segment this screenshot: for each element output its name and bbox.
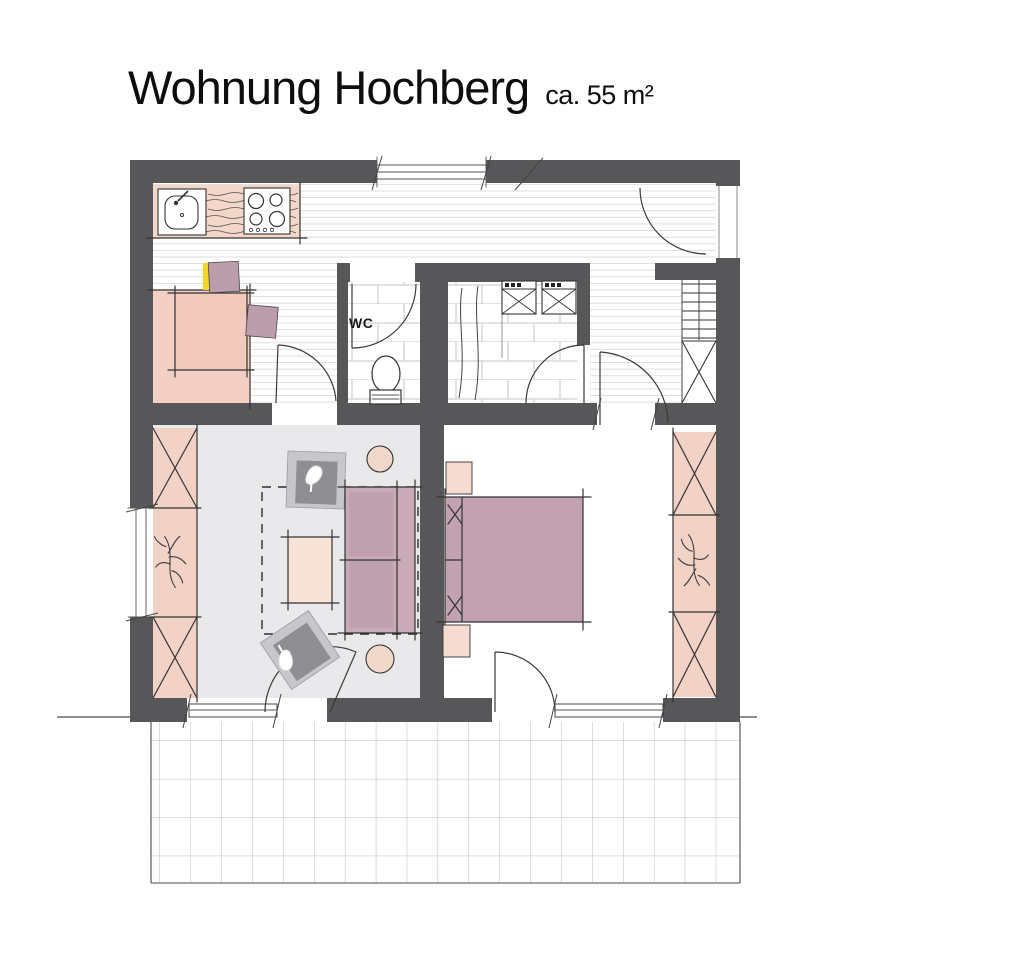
floorplan-page: Wohnung Hochbergca. 55 m²	[0, 0, 1024, 955]
stairs-icon	[682, 280, 716, 403]
wall-mid-vertical	[420, 403, 444, 722]
wall-top-left	[130, 160, 377, 183]
door-swing-icon-terrace-bedroom	[495, 652, 555, 712]
wall-mid-horizontal-1	[153, 403, 272, 425]
wardrobe-icon-living	[149, 424, 201, 702]
armchair-icon-1	[286, 451, 346, 509]
sofa-icon	[338, 480, 422, 640]
coffee-table-icon	[281, 530, 339, 610]
window-icon-top	[377, 157, 486, 187]
terrace-grid-icon	[151, 722, 740, 883]
wall-block-top-a	[337, 263, 350, 282]
chair-icon-1	[208, 261, 240, 293]
stove-icon	[244, 188, 290, 234]
wall-wc-bath	[420, 263, 448, 403]
wall-bottom-1	[130, 698, 187, 722]
washer-icon-1	[502, 281, 536, 314]
window-icon-terrace-bedroom	[555, 704, 663, 717]
wall-bottom-3	[663, 698, 740, 722]
chair-icon-2	[246, 305, 279, 338]
wall-right-main	[716, 258, 740, 722]
entrance-frame	[719, 186, 737, 258]
wall-wc-left	[337, 263, 348, 403]
pouf-icon-1	[367, 446, 393, 472]
nightstand-icon-1	[446, 462, 472, 494]
hall-lower-floor	[590, 263, 682, 403]
wall-right-top	[716, 160, 740, 186]
floorplan-drawing: WC	[0, 0, 1024, 955]
wall-mid-horizontal-2	[337, 403, 597, 425]
wardrobe-icon-bedroom	[669, 428, 720, 702]
terrace	[57, 717, 757, 883]
sink-icon	[158, 189, 206, 235]
bedroom	[437, 428, 720, 702]
wc-label: WC	[349, 315, 373, 331]
washer-icon-2	[542, 281, 576, 314]
nightstand-icon-2	[443, 625, 470, 657]
bed-icon	[437, 489, 591, 630]
wall-block-top-b	[415, 263, 590, 282]
table-icon	[168, 286, 254, 377]
wall-bottom-2	[327, 698, 492, 722]
toilet-icon	[370, 356, 401, 404]
window-icon-terrace-living	[189, 704, 277, 717]
pouf-icon-2	[366, 645, 394, 673]
wall-left-upper	[130, 160, 153, 508]
wall-stair-top	[655, 263, 716, 280]
window-icon-left	[128, 508, 153, 617]
